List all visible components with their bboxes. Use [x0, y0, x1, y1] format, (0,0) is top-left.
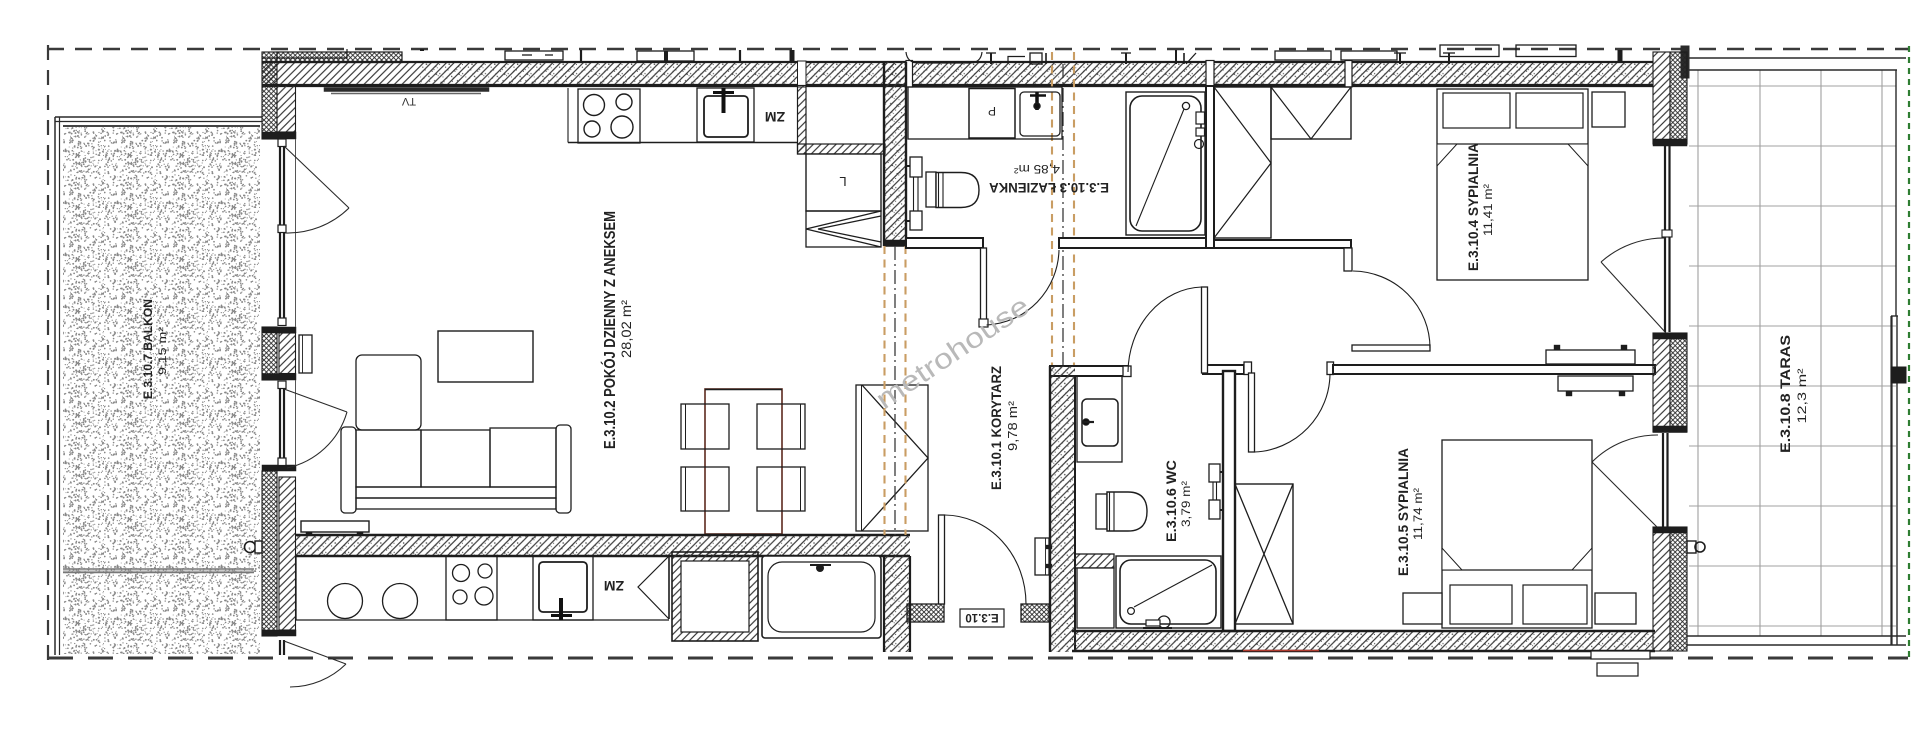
- svg-text:12,3 m²: 12,3 m²: [1795, 369, 1809, 424]
- svg-text:ZM: ZM: [604, 578, 624, 594]
- svg-text:11,74 m²: 11,74 m²: [1411, 488, 1425, 540]
- svg-text:9,15 m²: 9,15 m²: [157, 327, 169, 375]
- svg-text:4,85 m²: 4,85 m²: [1014, 162, 1060, 176]
- svg-text:3,79 m²: 3,79 m²: [1179, 481, 1193, 527]
- svg-text:28,02 m²: 28,02 m²: [619, 299, 634, 358]
- svg-text:11,41 m²: 11,41 m²: [1481, 184, 1495, 236]
- svg-text:E.3.10: E.3.10: [965, 611, 998, 623]
- svg-text:E.3.10.3 ŁAZIENKA: E.3.10.3 ŁAZIENKA: [989, 180, 1109, 195]
- svg-text:E.3.10.6 WC: E.3.10.6 WC: [1164, 460, 1179, 542]
- svg-text:E.3.10.7 BALKON: E.3.10.7 BALKON: [141, 299, 155, 399]
- svg-text:TV: TV: [401, 95, 416, 107]
- svg-text:P: P: [988, 104, 996, 118]
- svg-text:E.3.10.1 KORYTARZ: E.3.10.1 KORYTARZ: [988, 366, 1004, 490]
- svg-text:E.3.10.4 SYPIALNIA: E.3.10.4 SYPIALNIA: [1466, 143, 1481, 271]
- svg-text:E.3.10.5 SYPIALNIA: E.3.10.5 SYPIALNIA: [1396, 448, 1411, 576]
- svg-text:E.3.10.8 TARAS: E.3.10.8 TARAS: [1778, 335, 1793, 453]
- svg-text:E.3.10.2 POKÓJ DZIENNY Z ANEKS: E.3.10.2 POKÓJ DZIENNY Z ANEKSEM: [600, 211, 619, 449]
- svg-text:L: L: [839, 174, 846, 189]
- svg-text:9,78 m²: 9,78 m²: [1006, 401, 1020, 451]
- svg-text:ZM: ZM: [765, 109, 785, 125]
